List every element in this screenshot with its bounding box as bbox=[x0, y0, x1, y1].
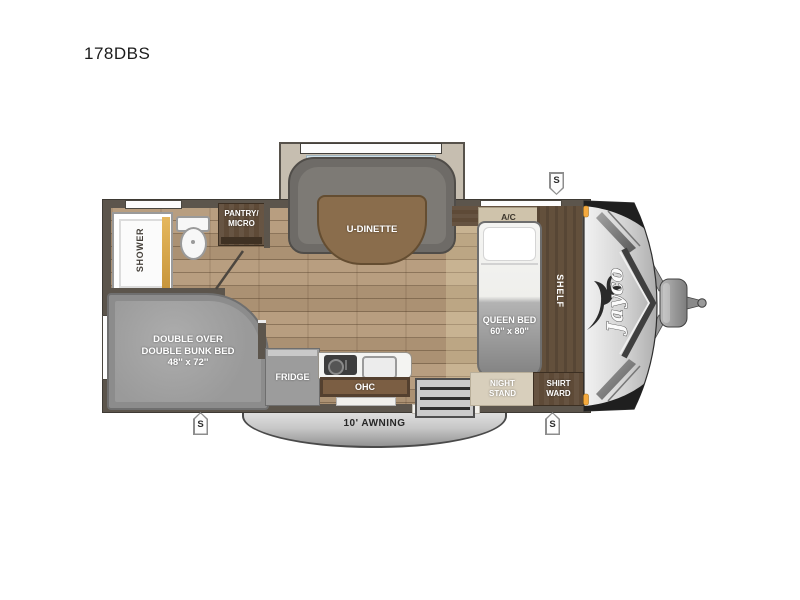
window-icon bbox=[125, 200, 182, 209]
step-rung bbox=[420, 387, 470, 390]
slideout-window bbox=[300, 143, 442, 154]
stove-knobs bbox=[345, 360, 353, 370]
speaker-badge: S bbox=[549, 172, 564, 195]
hitch-tongue bbox=[687, 297, 699, 309]
bunk-label: DOUBLE OVER DOUBLE BUNK BED 48'' x 72'' bbox=[142, 334, 235, 368]
toilet-bowl bbox=[180, 227, 207, 260]
jayco-logo-text: Jayco bbox=[603, 267, 628, 336]
fridge-label: FRIDGE bbox=[275, 372, 309, 383]
bed-sheet-fold bbox=[481, 263, 538, 265]
fridge: FRIDGE bbox=[265, 348, 320, 406]
shower-door-glass bbox=[162, 217, 170, 288]
queen-bed: QUEEN BED 60'' x 80'' bbox=[477, 221, 542, 378]
model-number: 178DBS bbox=[84, 44, 150, 64]
step-rung bbox=[420, 407, 470, 410]
night-stand: NIGHTSTAND bbox=[470, 372, 535, 406]
pantry-label: PANTRY/MICRO bbox=[224, 209, 258, 228]
floorplan-178dbs: 178DBS 10' AWNING U-DINETTE SHOWER PANTR… bbox=[0, 0, 800, 600]
stove-icon bbox=[324, 355, 357, 375]
dinette-table: U-DINETTE bbox=[317, 195, 427, 265]
sink-icon bbox=[362, 356, 397, 379]
shelf-label: SHELF bbox=[554, 274, 564, 308]
pantry-wall-stub bbox=[264, 200, 270, 248]
night-stand-label: NIGHTSTAND bbox=[489, 379, 516, 398]
entry-steps bbox=[415, 378, 475, 418]
pantry-micro-cabinet: PANTRY/MICRO bbox=[218, 203, 265, 246]
step-rung bbox=[420, 397, 470, 400]
ohc-cabinet: OHC bbox=[320, 377, 410, 397]
toilet-flush-dot bbox=[191, 240, 195, 244]
hitch-ball bbox=[698, 299, 706, 307]
bunk-mattress: DOUBLE OVER DOUBLE BUNK BED 48'' x 72'' bbox=[115, 301, 261, 402]
bed-pillow bbox=[483, 227, 536, 261]
queen-bed-label: QUEEN BED 60'' x 80'' bbox=[479, 315, 540, 337]
speaker-badge: S bbox=[193, 412, 208, 435]
shirt-wardrobe-label: SHIRTWARD bbox=[546, 379, 570, 398]
speaker-badge-label: S bbox=[549, 175, 564, 186]
bunk-bed: DOUBLE OVER DOUBLE BUNK BED 48'' x 72'' bbox=[107, 293, 269, 410]
marker-light-icon bbox=[584, 394, 589, 405]
awning-label: 10' AWNING bbox=[343, 418, 405, 446]
speaker-badge-label: S bbox=[545, 419, 560, 430]
speaker-badge: S bbox=[545, 412, 560, 435]
shower-label: SHOWER bbox=[135, 210, 145, 290]
speaker-badge-label: S bbox=[193, 419, 208, 430]
counter-ledge bbox=[336, 397, 396, 406]
dinette-label: U-DINETTE bbox=[347, 224, 398, 235]
jayco-front-cap: Jayco bbox=[575, 193, 715, 417]
stove-burner bbox=[328, 359, 344, 375]
marker-light-icon bbox=[584, 206, 589, 217]
ohc-label: OHC bbox=[355, 382, 375, 393]
shower: SHOWER bbox=[112, 212, 173, 295]
